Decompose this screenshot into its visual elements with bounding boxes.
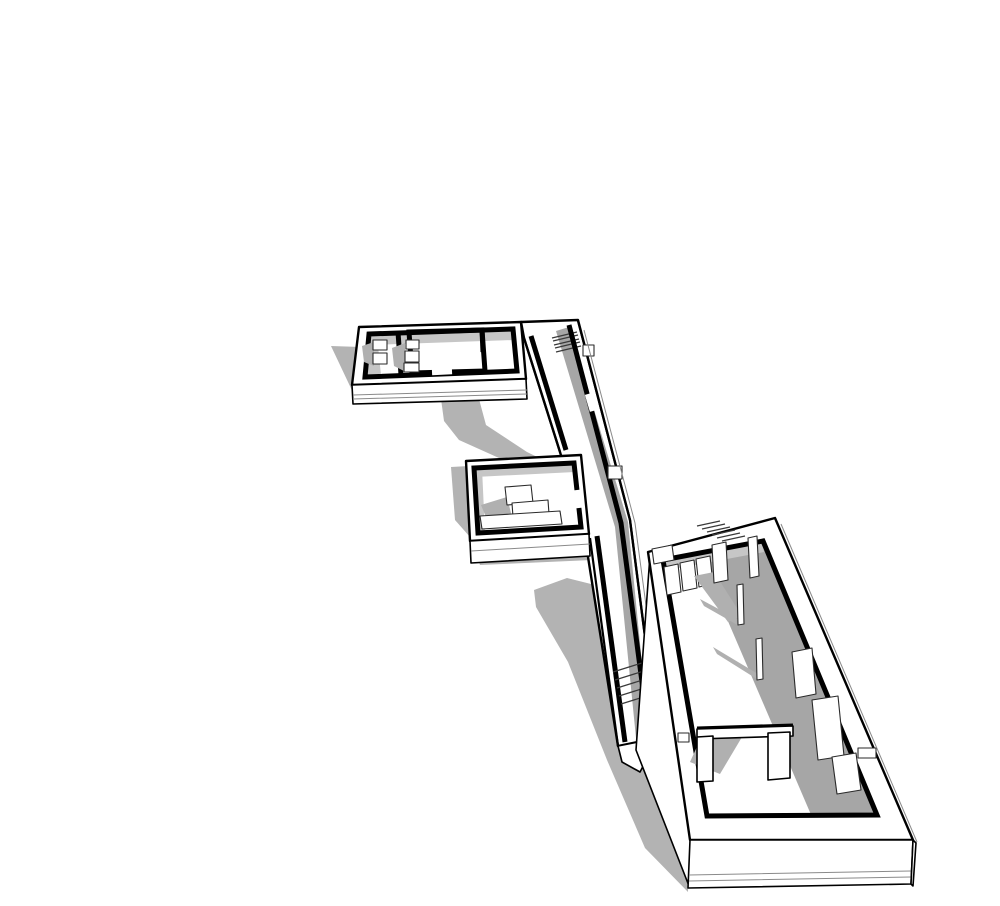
mid-room — [466, 455, 590, 563]
partition-stub-2 — [748, 536, 759, 578]
hall-block-wall-3 — [832, 753, 861, 794]
3d-model-viewport[interactable] — [0, 0, 1000, 906]
fixture-box-5 — [404, 363, 419, 372]
lower-partition-pillar-left — [697, 736, 713, 782]
column-1 — [737, 584, 744, 625]
hall-block-wall-2 — [812, 696, 844, 760]
fixture-box-3 — [406, 340, 419, 349]
fixture-box-4 — [405, 351, 419, 362]
corridor-wall-box-2 — [608, 466, 622, 479]
partition-stub-1 — [712, 542, 728, 583]
hall-small-box-1 — [858, 748, 876, 758]
model-stage — [0, 0, 1000, 906]
fixture-box-1 — [373, 340, 387, 350]
main-hall — [636, 518, 917, 888]
midroom-door-gap — [577, 490, 579, 508]
hall-small-box-2 — [678, 733, 689, 742]
lower-partition-pillar-right — [768, 732, 790, 780]
hall-block-wall-1 — [792, 648, 816, 698]
column-2 — [756, 638, 763, 680]
wing-partition-b — [482, 330, 483, 352]
fixture-box-2 — [373, 353, 387, 364]
wing-room-door-gap — [432, 371, 452, 372]
upper-wing — [352, 322, 527, 404]
